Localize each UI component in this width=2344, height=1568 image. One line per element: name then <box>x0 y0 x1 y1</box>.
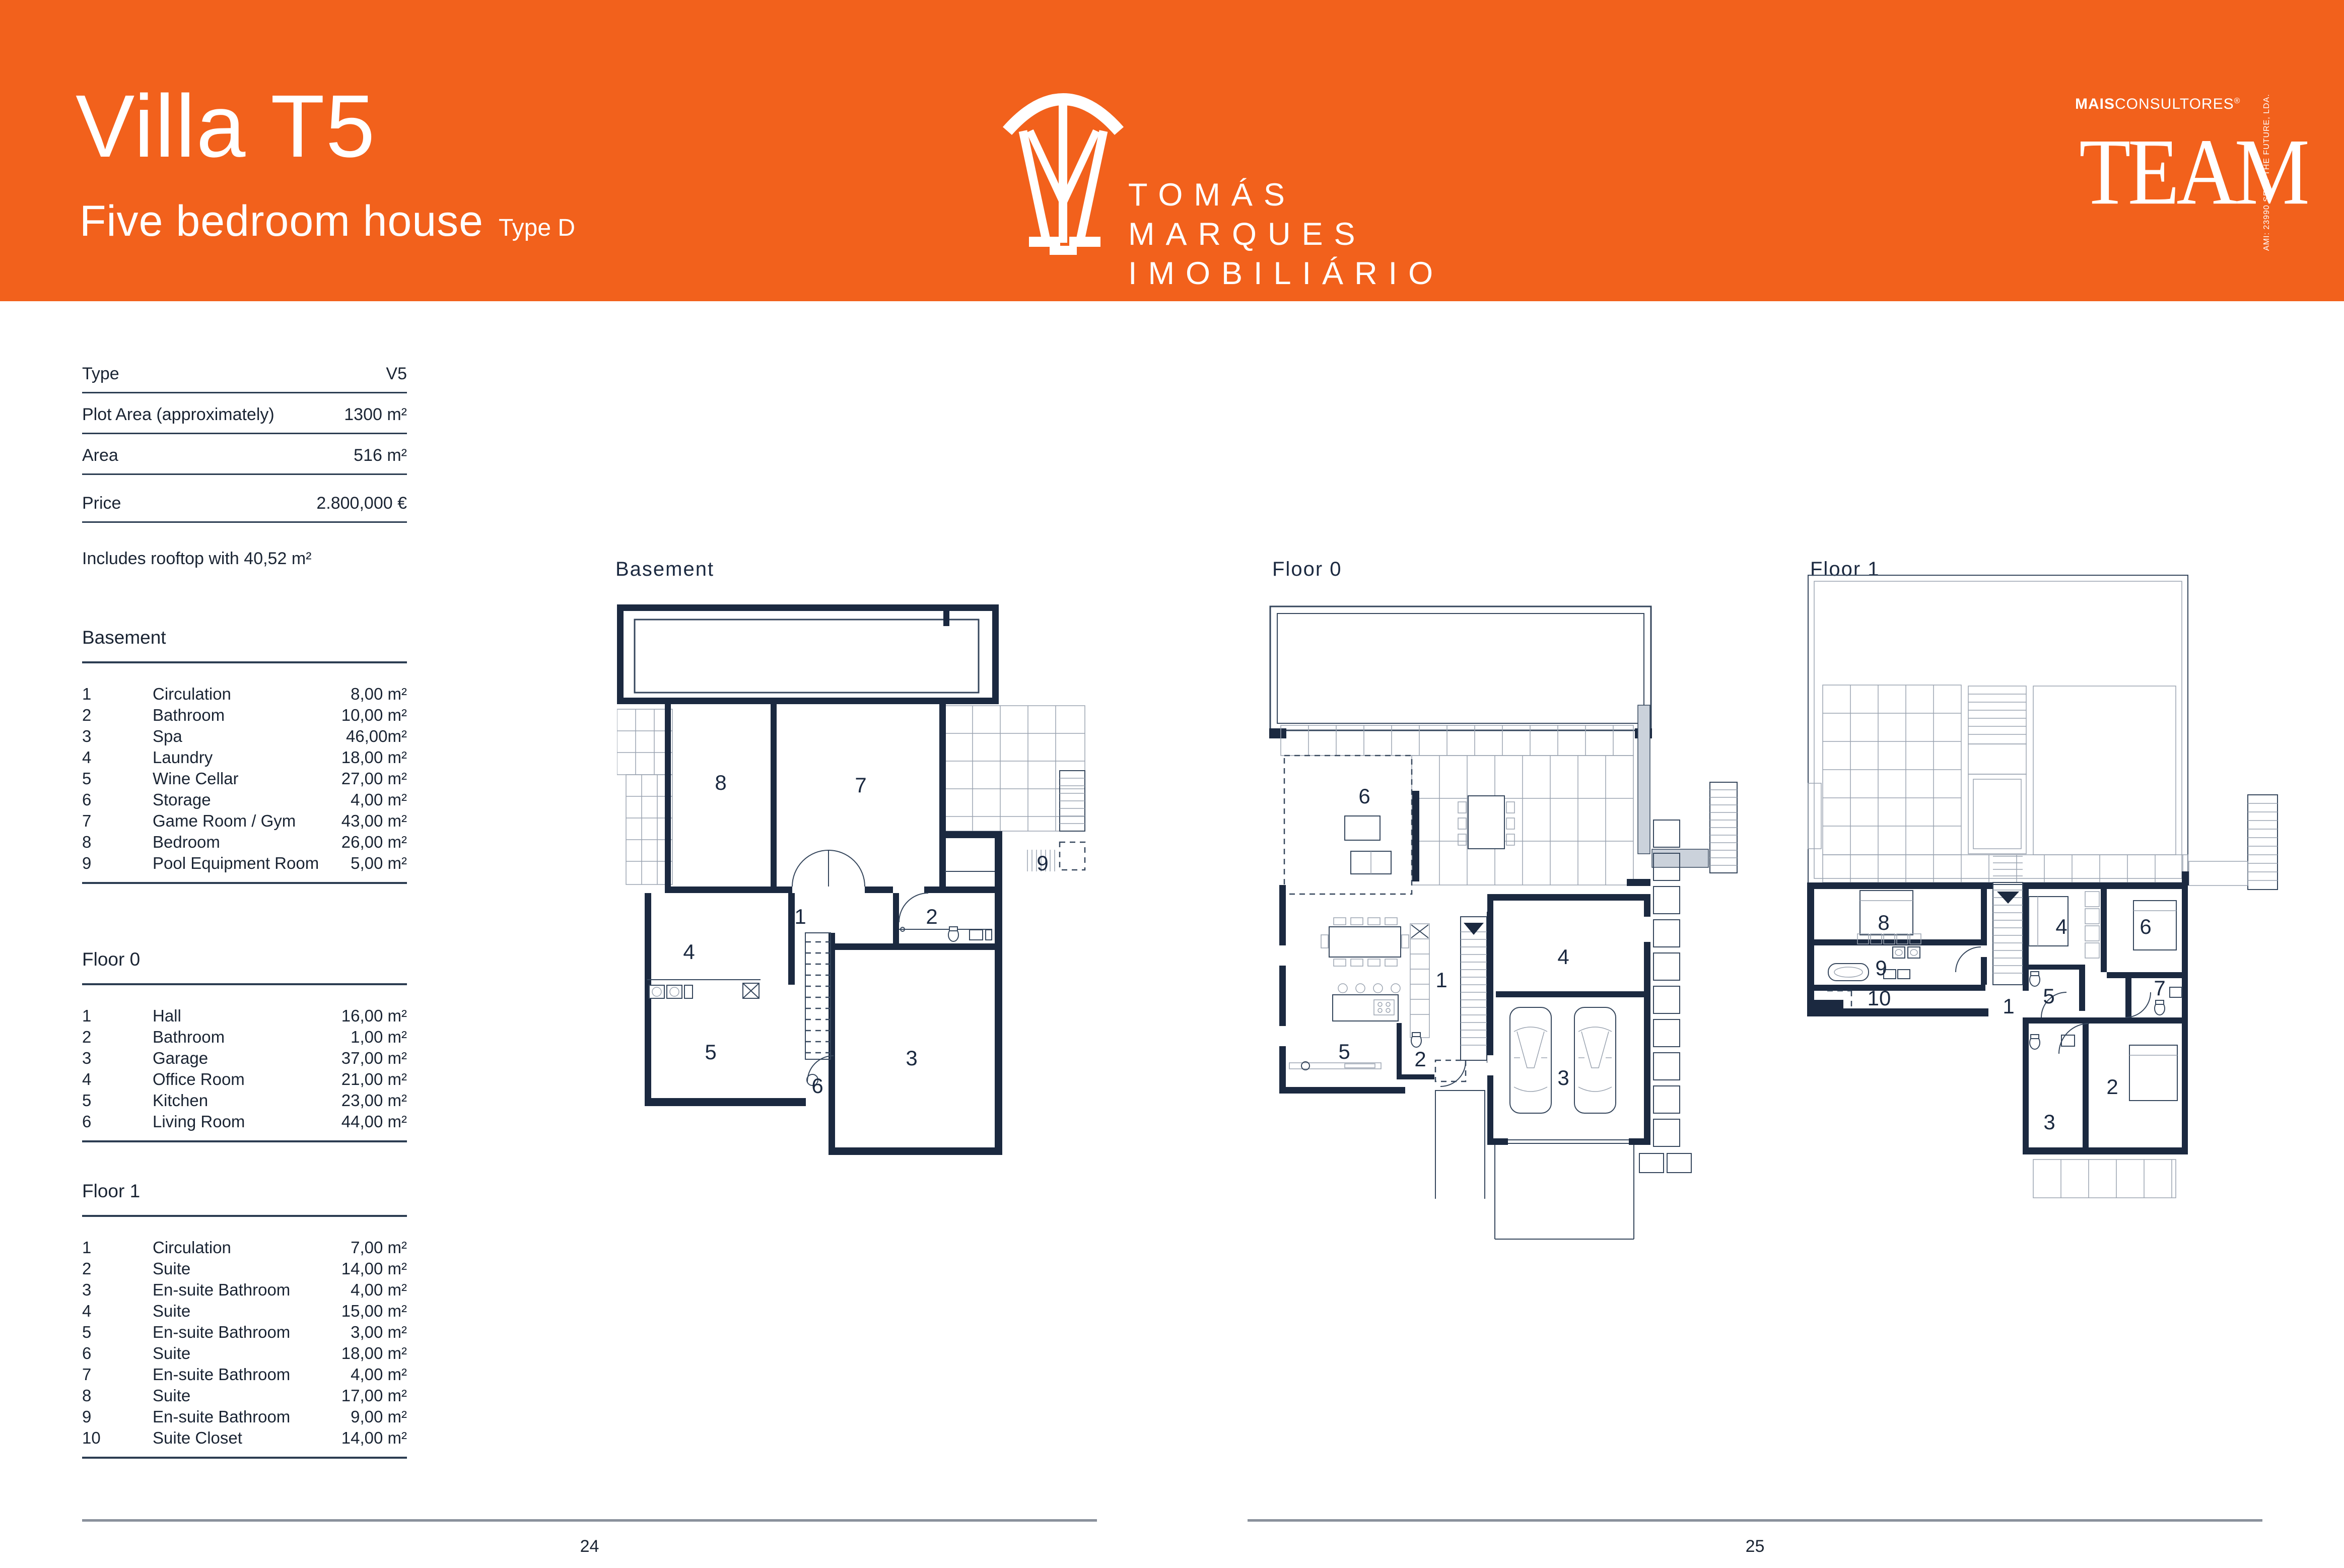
room-area: 14,00 m² <box>341 1258 407 1279</box>
room-num: 1 <box>82 1005 153 1027</box>
registered-icon: ® <box>2234 97 2241 105</box>
room-row: 4Suite15,00 m² <box>82 1301 407 1322</box>
room-area: 43,00 m² <box>341 810 407 832</box>
room-row: 3Garage37,00 m² <box>82 1048 407 1069</box>
room-row: 7Game Room / Gym43,00 m² <box>82 810 407 832</box>
room-area: 37,00 m² <box>341 1048 407 1069</box>
room-number: 2 <box>926 905 937 928</box>
room-num: 4 <box>82 747 153 768</box>
room-name: Kitchen <box>153 1090 341 1111</box>
room-num: 10 <box>82 1427 153 1449</box>
room-row: 2Bathroom1,00 m² <box>82 1027 407 1048</box>
room-area: 27,00 m² <box>341 768 407 789</box>
room-row: 4Office Room21,00 m² <box>82 1069 407 1090</box>
brochure-page: Villa T5 Five bedroom house Type D TOMÁS… <box>0 0 2344 1568</box>
room-num: 9 <box>82 1406 153 1427</box>
plan-label-floor0: Floor 0 <box>1272 558 1342 581</box>
room-num: 2 <box>82 1258 153 1279</box>
floor0-cabinet-stairs <box>1410 912 1493 1063</box>
basement-pool <box>617 604 999 704</box>
room-num: 8 <box>82 1385 153 1406</box>
divider <box>82 1140 407 1142</box>
plan-label-basement: Basement <box>615 558 714 581</box>
room-name: Hall <box>153 1005 341 1027</box>
partner-logo: MAISCONSULTORES® TEAM AMI: 23990 SEED TH… <box>2075 96 2287 113</box>
room-area: 16,00 m² <box>341 1005 407 1027</box>
room-number: 1 <box>1435 968 1447 992</box>
room-area: 44,00 m² <box>341 1111 407 1132</box>
room-name: Laundry <box>153 747 341 768</box>
detail-label: Area <box>82 446 118 465</box>
basement-hatch-areas <box>617 709 672 884</box>
detail-row-type: Type V5 <box>82 353 407 393</box>
room-num: 7 <box>82 810 153 832</box>
room-area: 4,00 m² <box>351 1364 407 1385</box>
basement-terrace <box>945 706 1085 870</box>
room-number: 3 <box>906 1046 917 1070</box>
room-row: 9En-suite Bathroom9,00 m² <box>82 1406 407 1427</box>
floor0-pool <box>1269 606 1652 738</box>
room-rows: 1Hall16,00 m² 2Bathroom1,00 m² 3Garage37… <box>82 1005 407 1132</box>
room-name: Spa <box>153 726 346 747</box>
room-name: Suite <box>153 1385 341 1406</box>
footer-left: 24 <box>82 1519 1097 1556</box>
basement-door-arcs <box>792 850 928 922</box>
room-num: 3 <box>82 1048 153 1069</box>
room-name: Suite <box>153 1301 341 1322</box>
room-number: 5 <box>705 1040 716 1064</box>
room-area: 7,00 m² <box>351 1237 407 1258</box>
type-label: Type D <box>499 214 575 242</box>
basement-room-numbers: 8 7 9 1 2 4 5 6 3 <box>683 771 1048 1098</box>
partner-license-text: AMI: 23990 SEED THE FUTURE, LDA. <box>2262 125 2271 251</box>
room-num: 5 <box>82 768 153 789</box>
room-row: 3En-suite Bathroom4,00 m² <box>82 1279 407 1301</box>
room-rows: 1Circulation8,00 m² 2Bathroom10,00 m² 3S… <box>82 684 407 874</box>
room-num: 5 <box>82 1090 153 1111</box>
section-title: Floor 1 <box>82 1181 407 1202</box>
room-number: 2 <box>2106 1075 2118 1099</box>
room-area: 15,00 m² <box>341 1301 407 1322</box>
room-name: En-suite Bathroom <box>153 1364 351 1385</box>
room-name: Suite <box>153 1258 341 1279</box>
room-name: Circulation <box>153 684 351 705</box>
detail-value: V5 <box>386 364 407 384</box>
room-num: 4 <box>82 1069 153 1090</box>
room-row: 10Suite Closet14,00 m² <box>82 1427 407 1449</box>
floorplan-basement: 8 7 9 1 2 4 5 6 3 <box>617 604 1111 1194</box>
floor1-bathroom9 <box>1828 947 1981 981</box>
floor0-wc <box>1397 1023 1485 1199</box>
brand-line-1: TOMÁS <box>1128 175 1444 215</box>
page-number-left: 24 <box>82 1537 1097 1556</box>
room-area: 18,00 m² <box>341 1343 407 1364</box>
room-num: 1 <box>82 684 153 705</box>
room-number: 4 <box>2055 915 2067 938</box>
detail-label: Plot Area (approximately) <box>82 405 274 425</box>
detail-value: 1300 m² <box>344 405 407 425</box>
room-area: 5,00 m² <box>351 853 407 874</box>
room-area: 10,00 m² <box>341 705 407 726</box>
room-num: 3 <box>82 726 153 747</box>
room-name: En-suite Bathroom <box>153 1406 351 1427</box>
room-row: 3Spa46,00m² <box>82 726 407 747</box>
partner-name-rest: CONSULTORES <box>2115 96 2234 112</box>
room-num: 1 <box>82 1237 153 1258</box>
room-area: 8,00 m² <box>351 684 407 705</box>
room-area: 1,00 m² <box>351 1027 407 1048</box>
room-number: 9 <box>1875 956 1887 980</box>
room-name: Office Room <box>153 1069 341 1090</box>
room-number: 2 <box>1414 1047 1426 1071</box>
room-name: Living Room <box>153 1111 341 1132</box>
room-row: 1Circulation8,00 m² <box>82 684 407 705</box>
room-num: 2 <box>82 705 153 726</box>
room-area: 4,00 m² <box>351 1279 407 1301</box>
room-row: 8Bedroom26,00 m² <box>82 832 407 853</box>
footer-right: 25 <box>1248 1519 2262 1556</box>
room-number: 6 <box>1358 784 1370 808</box>
room-num: 7 <box>82 1364 153 1385</box>
room-name: Suite <box>153 1343 341 1364</box>
room-num: 8 <box>82 832 153 853</box>
detail-label: Type <box>82 364 119 384</box>
room-row: 1Circulation7,00 m² <box>82 1237 407 1258</box>
room-name: Bathroom <box>153 705 341 726</box>
room-area: 17,00 m² <box>341 1385 407 1406</box>
room-name: Circulation <box>153 1237 351 1258</box>
room-number: 7 <box>855 773 866 797</box>
divider <box>82 882 407 884</box>
room-area: 9,00 m² <box>351 1406 407 1427</box>
room-number: 3 <box>1557 1066 1569 1089</box>
room-row: 8Suite17,00 m² <box>82 1385 407 1406</box>
room-number: 7 <box>2154 976 2165 1000</box>
room-number: 8 <box>1878 911 1889 934</box>
detail-row-plot-area: Plot Area (approximately) 1300 m² <box>82 393 407 434</box>
divider <box>82 1215 407 1217</box>
room-name: Pool Equipment Room <box>153 853 351 874</box>
details-table: Type V5 Plot Area (approximately) 1300 m… <box>82 353 407 569</box>
page-number-right: 25 <box>1248 1537 2262 1556</box>
tm-monogram-icon <box>1000 80 1127 257</box>
room-number: 10 <box>1868 986 1891 1010</box>
room-row: 2Suite14,00 m² <box>82 1258 407 1279</box>
partner-team-wordmark: TEAM <box>2079 118 2307 227</box>
divider <box>82 983 407 985</box>
room-area: 23,00 m² <box>341 1090 407 1111</box>
room-number: 5 <box>2043 984 2054 1008</box>
room-row: 6Storage4,00 m² <box>82 789 407 810</box>
room-num: 5 <box>82 1322 153 1343</box>
room-name: En-suite Bathroom <box>153 1279 351 1301</box>
room-number: 1 <box>2003 994 2014 1018</box>
basement-bathroom-fixtures <box>899 927 992 941</box>
room-num: 9 <box>82 853 153 874</box>
room-row: 9Pool Equipment Room5,00 m² <box>82 853 407 874</box>
room-name: Bedroom <box>153 832 341 853</box>
room-number: 4 <box>1557 945 1569 969</box>
page-subtitle: Five bedroom house Type D <box>80 196 575 246</box>
room-name: Bathroom <box>153 1027 351 1048</box>
room-row: 5Kitchen23,00 m² <box>82 1090 407 1111</box>
room-area: 4,00 m² <box>351 789 407 810</box>
room-area: 18,00 m² <box>341 747 407 768</box>
section-title: Basement <box>82 627 407 648</box>
room-num: 6 <box>82 1343 153 1364</box>
room-row: 1Hall16,00 m² <box>82 1005 407 1027</box>
room-number: 6 <box>2140 915 2151 938</box>
room-num: 3 <box>82 1279 153 1301</box>
divider <box>82 1457 407 1459</box>
page-title: Villa T5 <box>76 76 376 177</box>
room-num: 2 <box>82 1027 153 1048</box>
room-name: Garage <box>153 1048 341 1069</box>
room-area: 3,00 m² <box>351 1322 407 1343</box>
brand-line-3: IMOBILIÁRIO <box>1128 254 1444 293</box>
room-area: 21,00 m² <box>341 1069 407 1090</box>
room-name: Suite Closet <box>153 1427 341 1449</box>
floor1-roof <box>1808 575 2278 890</box>
room-number: 1 <box>794 905 806 928</box>
room-list-floor1: Floor 1 1Circulation7,00 m² 2Suite14,00 … <box>82 1181 407 1459</box>
basement-laundry-fixtures <box>647 980 761 998</box>
partner-name: MAISCONSULTORES® <box>2075 96 2287 113</box>
detail-label: Price <box>82 494 121 513</box>
room-num: 6 <box>82 1111 153 1132</box>
room-area: 14,00 m² <box>341 1427 407 1449</box>
room-name: Storage <box>153 789 351 810</box>
brand-wordmark: TOMÁS MARQUES IMOBILIÁRIO <box>1128 175 1444 293</box>
floorplan-floor1: 8 9 10 1 4 5 6 7 2 3 <box>1807 574 2291 1209</box>
floor1-stairs <box>1993 856 2023 985</box>
room-number: 8 <box>715 771 726 794</box>
detail-value: 2.800,000 € <box>316 494 407 513</box>
floor1-suite2-ensuite3 <box>2030 1024 2177 1101</box>
rooftop-note: Includes rooftop with 40,52 m² <box>82 549 407 569</box>
room-num: 4 <box>82 1301 153 1322</box>
detail-row-area: Area 516 m² <box>82 434 407 475</box>
room-number: 9 <box>1037 851 1048 875</box>
brand-line-2: MARQUES <box>1128 215 1444 254</box>
floor0-terrace-tiles <box>1281 705 1737 885</box>
room-name: Wine Cellar <box>153 768 341 789</box>
room-area: 26,00 m² <box>341 832 407 853</box>
floor0-living-furniture <box>1289 816 1409 1070</box>
room-name: En-suite Bathroom <box>153 1322 351 1343</box>
hero-banner: Villa T5 Five bedroom house Type D TOMÁS… <box>0 0 2344 301</box>
footer-rule <box>1248 1519 2262 1522</box>
room-number: 3 <box>2043 1110 2055 1134</box>
partner-name-bold: MAIS <box>2075 96 2115 112</box>
subtitle-text: Five bedroom house <box>80 196 484 246</box>
floor1-terrace <box>2033 1160 2176 1198</box>
room-row: 6Living Room44,00 m² <box>82 1111 407 1132</box>
room-rows: 1Circulation7,00 m² 2Suite14,00 m² 3En-s… <box>82 1237 407 1449</box>
section-title: Floor 0 <box>82 949 407 970</box>
detail-row-price: Price 2.800,000 € <box>82 475 407 523</box>
room-row: 2Bathroom10,00 m² <box>82 705 407 726</box>
room-num: 6 <box>82 789 153 810</box>
room-number: 6 <box>811 1074 823 1098</box>
room-number: 5 <box>1338 1040 1350 1063</box>
divider <box>82 661 407 663</box>
footer-rule <box>82 1519 1097 1522</box>
detail-value: 516 m² <box>354 446 407 465</box>
room-row: 7En-suite Bathroom4,00 m² <box>82 1364 407 1385</box>
room-row: 5Wine Cellar27,00 m² <box>82 768 407 789</box>
floorplan-floor0: 6 4 1 5 2 3 <box>1269 604 1768 1249</box>
room-row: 4Laundry18,00 m² <box>82 747 407 768</box>
room-area: 46,00m² <box>346 726 407 747</box>
room-row: 5En-suite Bathroom3,00 m² <box>82 1322 407 1343</box>
room-name: Game Room / Gym <box>153 810 341 832</box>
floor1-ensuite5 <box>2030 972 2040 986</box>
room-row: 6Suite18,00 m² <box>82 1343 407 1364</box>
room-list-basement: Basement 1Circulation8,00 m² 2Bathroom10… <box>82 627 407 884</box>
floor1-suite4 <box>2029 892 2099 1017</box>
room-number: 4 <box>683 940 695 964</box>
room-list-floor0: Floor 0 1Hall16,00 m² 2Bathroom1,00 m² 3… <box>82 949 407 1142</box>
